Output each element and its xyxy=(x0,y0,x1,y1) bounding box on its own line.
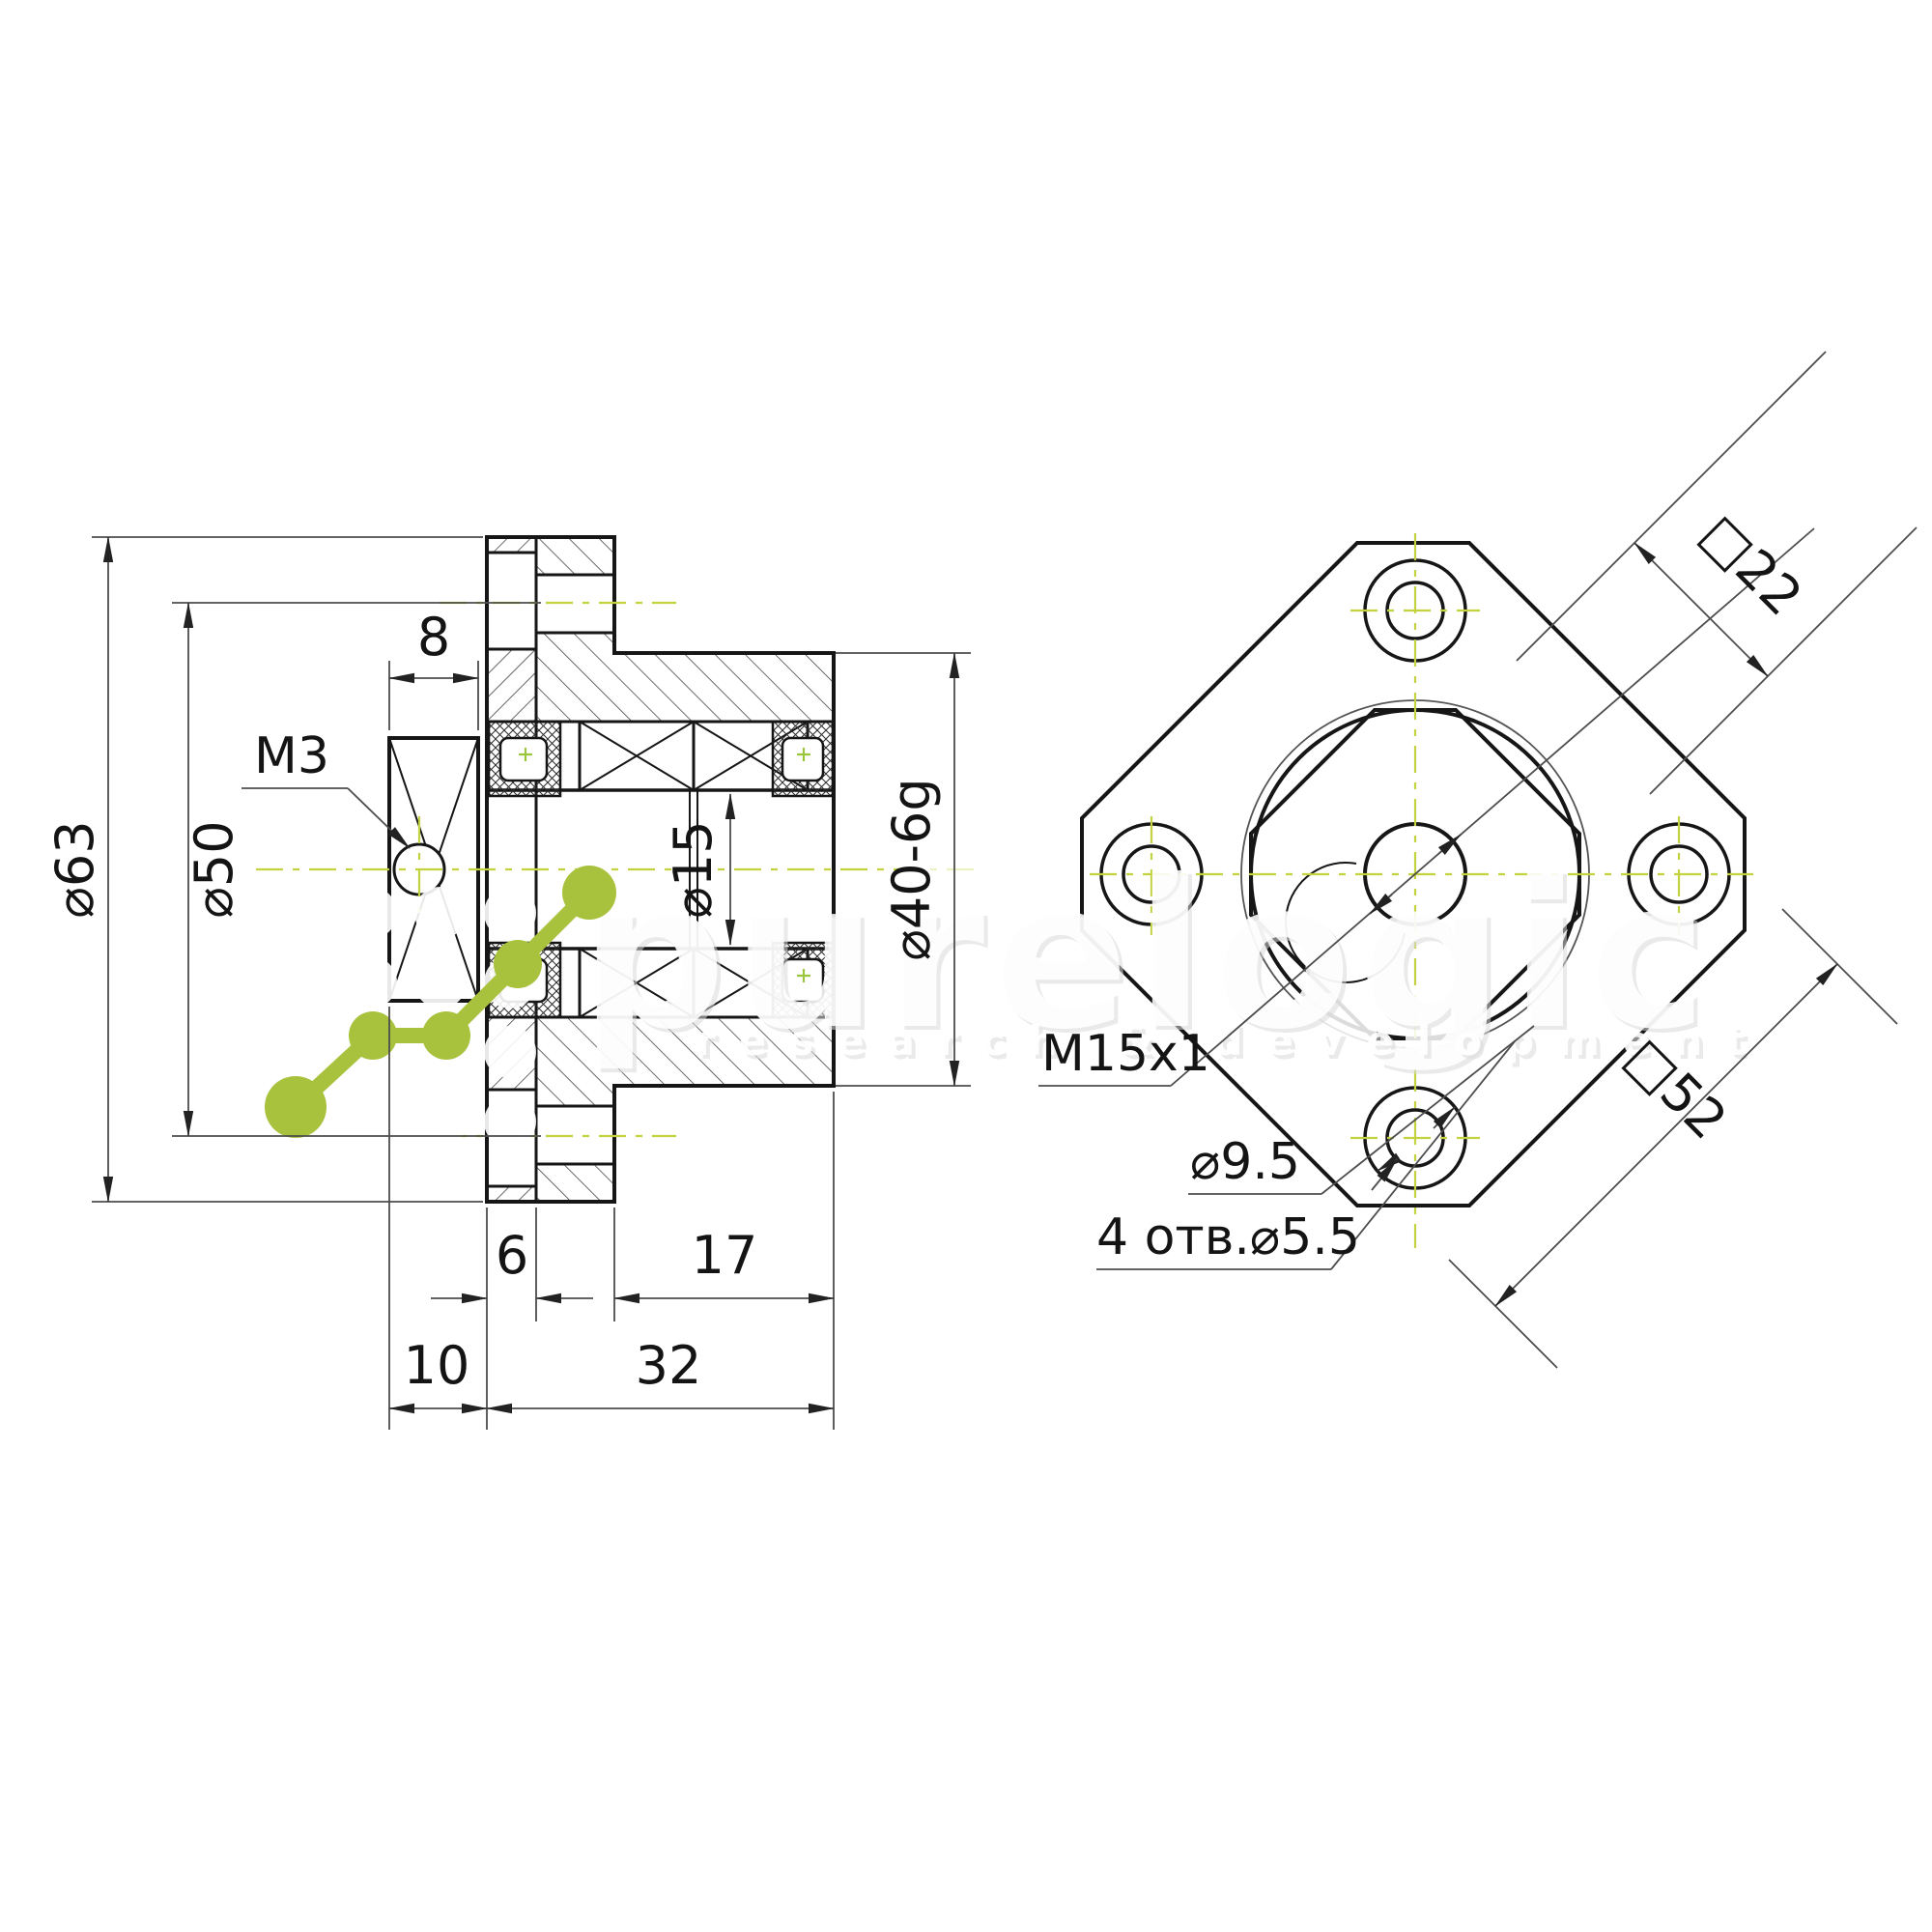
label-m3: M3 xyxy=(254,727,329,785)
watermark: purelogic purelogic research & developme… xyxy=(265,792,1772,1148)
dim-32: 32 xyxy=(636,1335,702,1396)
dim-6: 6 xyxy=(496,1225,528,1286)
drawing-canvas: purelogic purelogic research & developme… xyxy=(0,0,1932,1932)
dim-8: 8 xyxy=(417,607,450,668)
dim-d63: ⌀63 xyxy=(44,820,105,918)
dim-10: 10 xyxy=(404,1335,470,1396)
dim-d50: ⌀50 xyxy=(184,820,244,918)
label-d9-5: ⌀9.5 xyxy=(1190,1133,1300,1191)
label-4-holes-d5-5: 4 отв.⌀5.5 xyxy=(1096,1208,1360,1266)
dim-17: 17 xyxy=(692,1225,758,1286)
label-m15x1: M15x1 xyxy=(1041,1025,1210,1083)
technical-drawing: purelogic purelogic research & developme… xyxy=(0,0,1932,1932)
dim-d15: ⌀15 xyxy=(663,820,724,918)
dim-square22: □22 xyxy=(1689,502,1813,627)
watermark-tagline: research & development xyxy=(696,1017,1768,1065)
dim-d40-6g: ⌀40-6g xyxy=(881,778,942,960)
